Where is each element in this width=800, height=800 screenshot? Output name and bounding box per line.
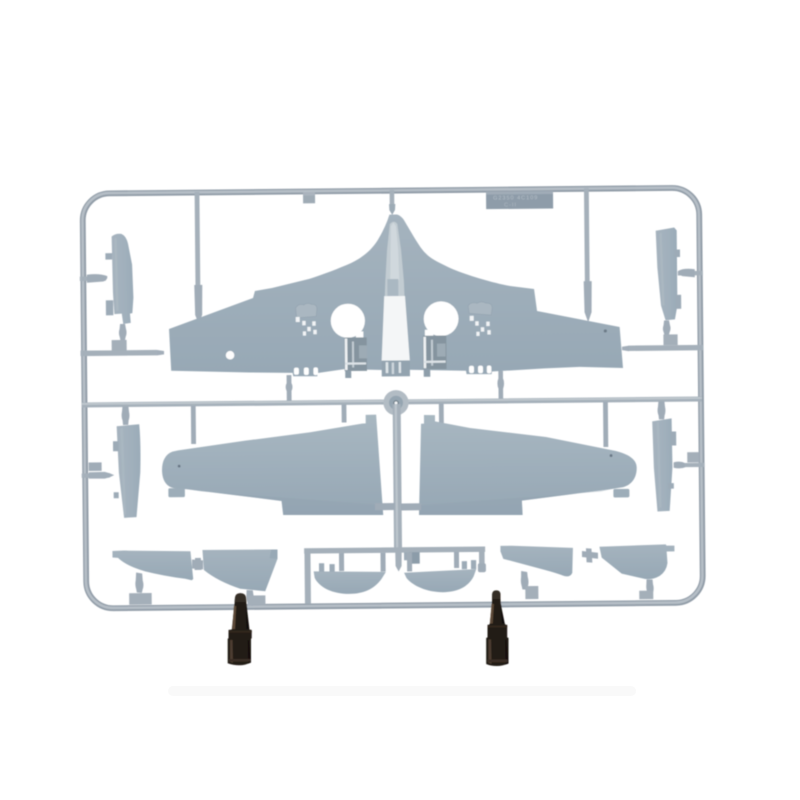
svg-text:C-II: C-II (504, 202, 517, 208)
svg-text:G2350 4C109: G2350 4C109 (493, 195, 538, 201)
